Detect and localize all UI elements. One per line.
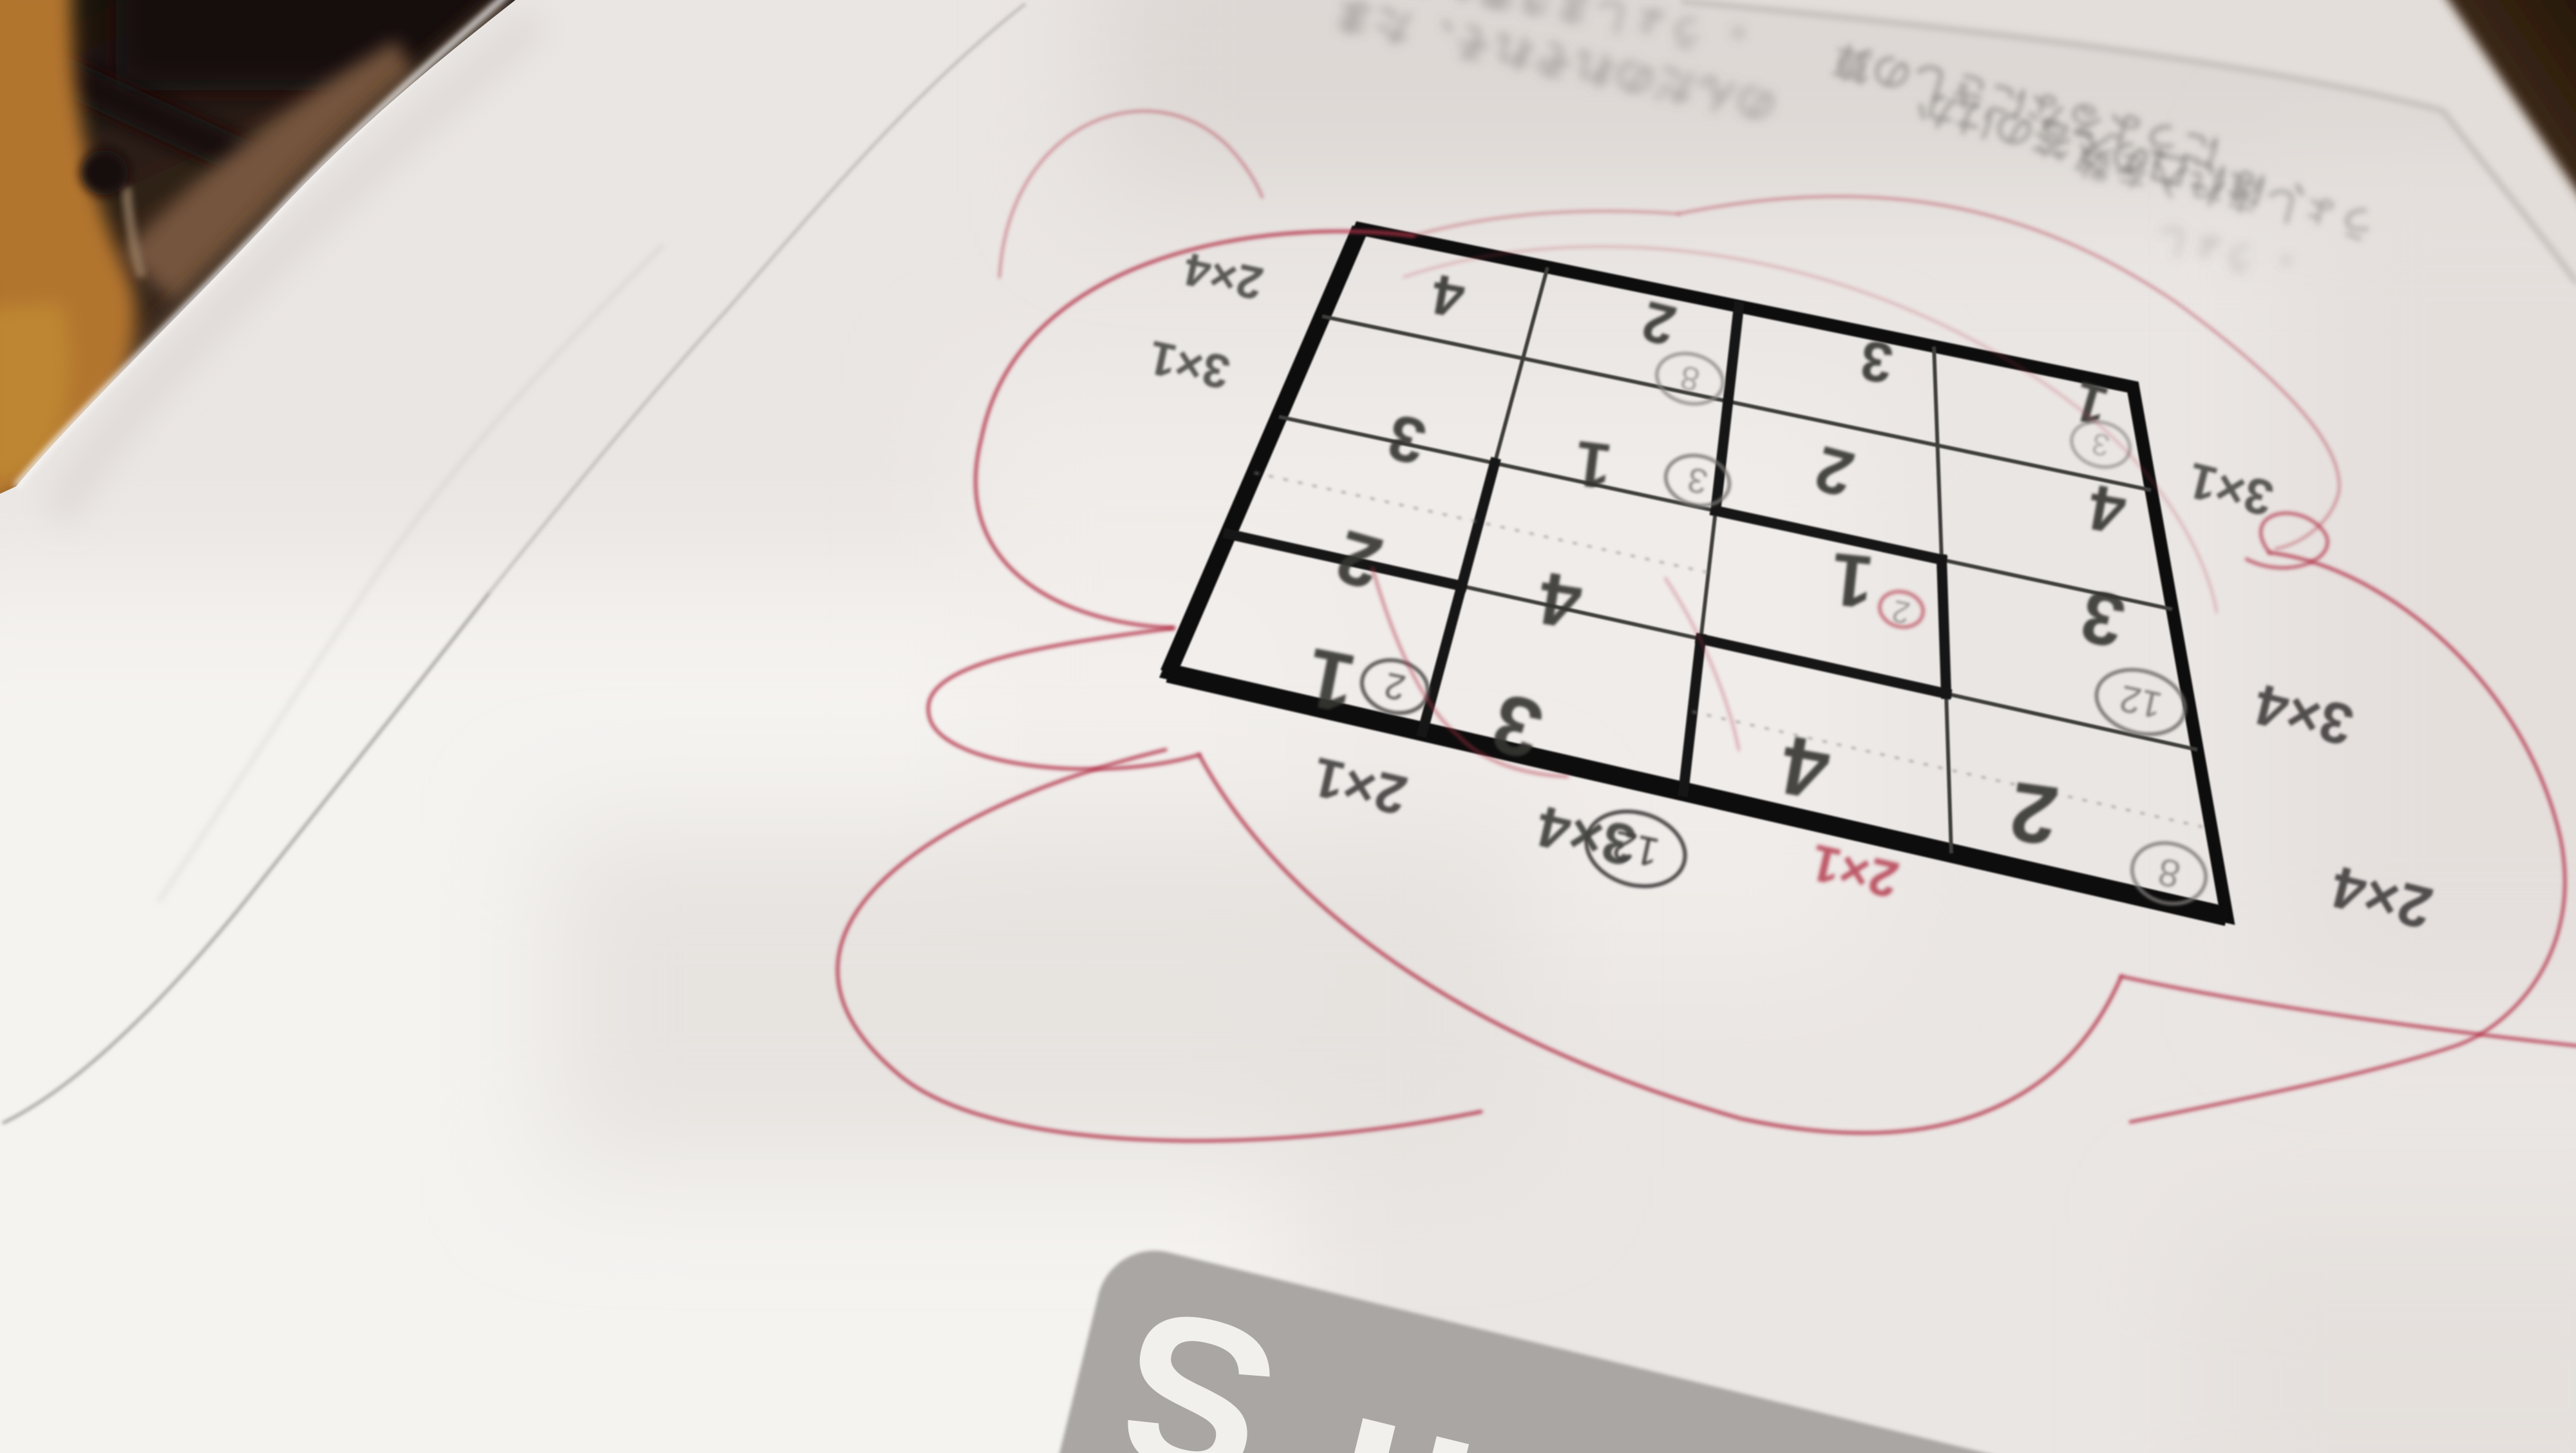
svg-text:1: 1 (1827, 537, 1877, 625)
svg-text:12: 12 (2116, 677, 2166, 726)
